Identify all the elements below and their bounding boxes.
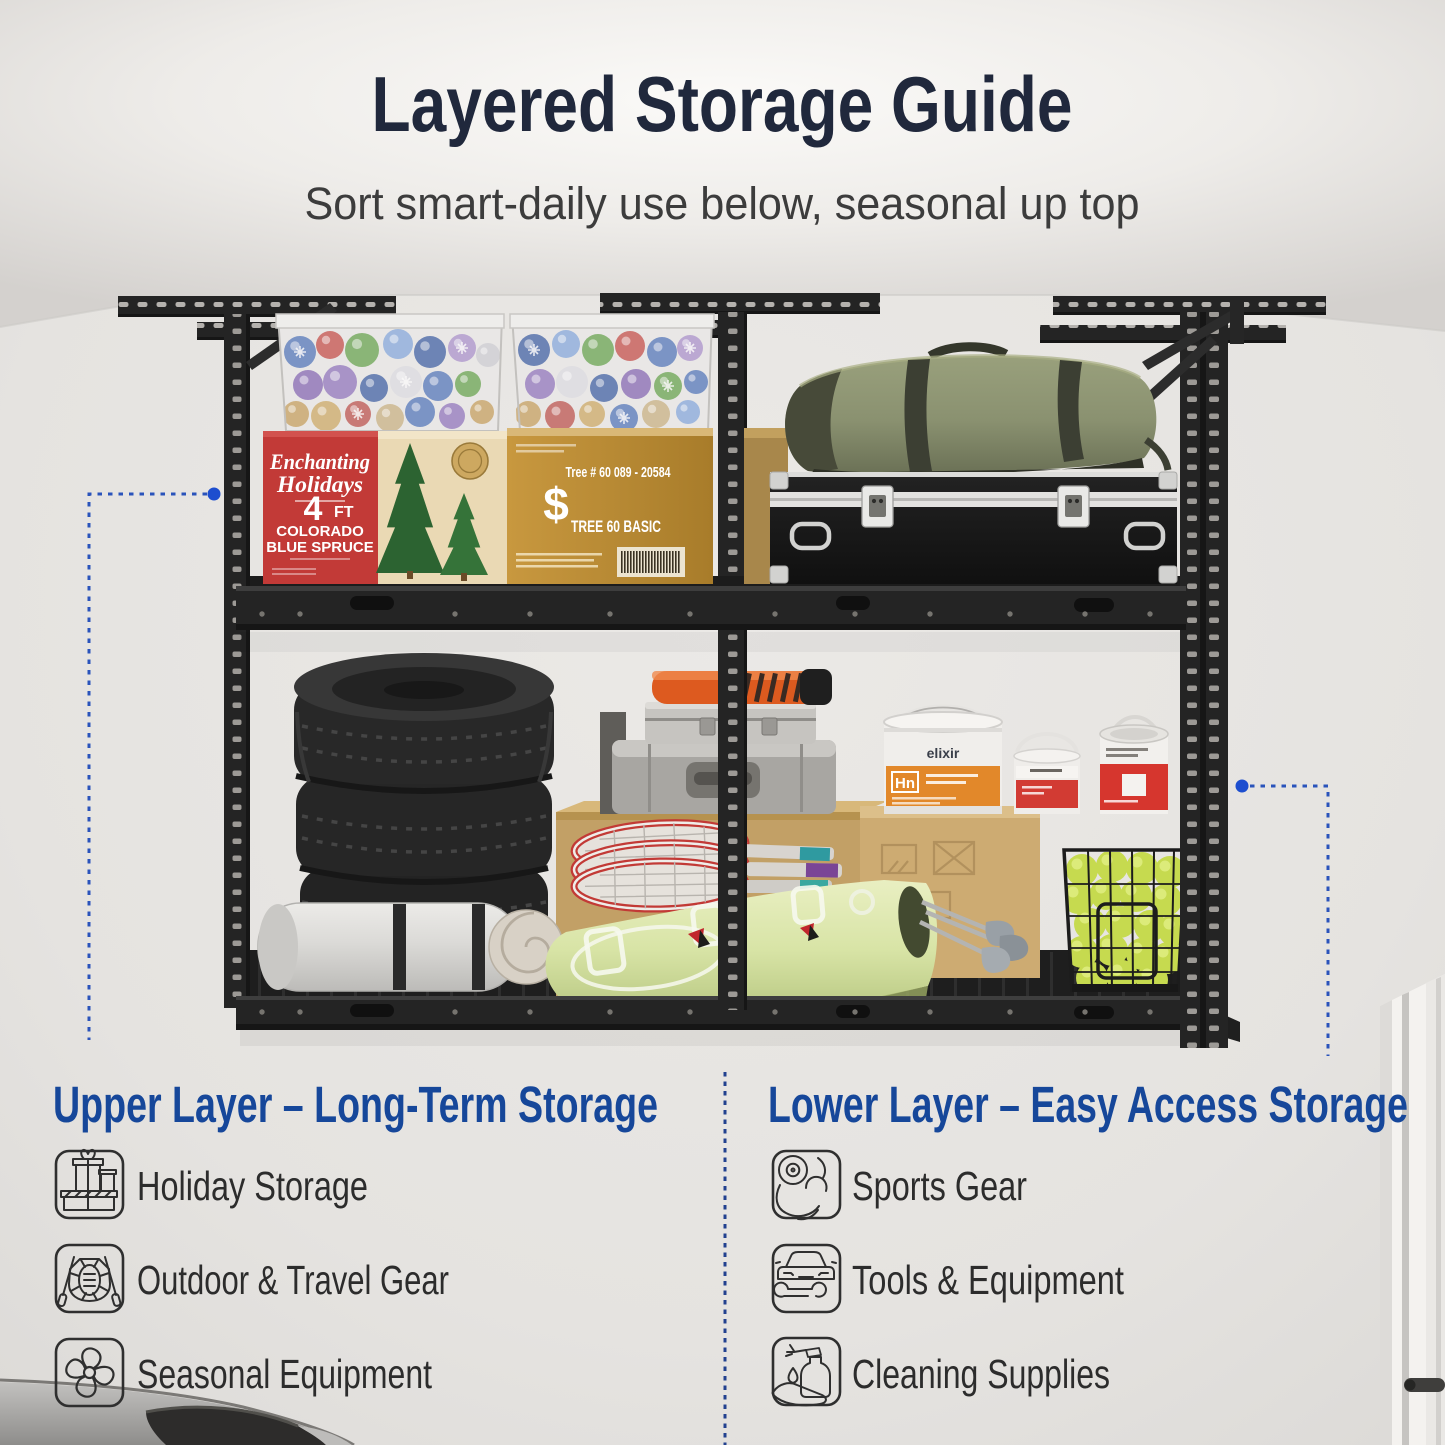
svg-text:Tree # 60 089 - 20584: Tree # 60 089 - 20584 [566, 464, 671, 481]
svg-text:Tools & Equipment: Tools & Equipment [852, 1257, 1124, 1303]
svg-text:Seasonal Equipment: Seasonal Equipment [137, 1351, 432, 1397]
svg-text:FT: FT [334, 504, 354, 521]
svg-text:Outdoor & Travel Gear: Outdoor & Travel Gear [137, 1257, 449, 1303]
svg-text:Lower Layer – Easy Access Stor: Lower Layer – Easy Access Storage [768, 1076, 1408, 1133]
svg-text:Enchanting: Enchanting [269, 449, 370, 474]
svg-text:elixir: elixir [927, 745, 960, 761]
svg-text:TREE 60 BASIC: TREE 60 BASIC [571, 517, 661, 536]
svg-text:Upper Layer – Long-Term Storag: Upper Layer – Long-Term Storage [53, 1076, 658, 1133]
svg-text:Sort smart-daily use below, se: Sort smart-daily use below, seasonal up … [305, 178, 1140, 229]
svg-text:Layered Storage Guide: Layered Storage Guide [372, 60, 1073, 148]
svg-text:Sports Gear: Sports Gear [852, 1163, 1027, 1209]
svg-text:Cleaning Supplies: Cleaning Supplies [852, 1351, 1110, 1397]
svg-text:BLUE SPRUCE: BLUE SPRUCE [266, 539, 374, 556]
svg-text:$: $ [543, 478, 569, 530]
svg-text:Holiday Storage: Holiday Storage [137, 1163, 368, 1209]
svg-text:COLORADO: COLORADO [276, 523, 364, 540]
svg-text:Hn: Hn [895, 775, 915, 792]
